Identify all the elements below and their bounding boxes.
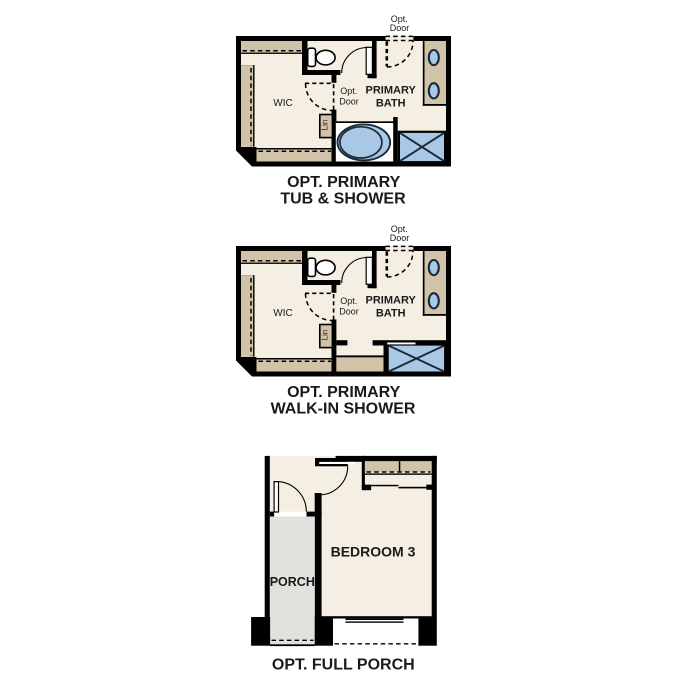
svg-text:Opt.: Opt.: [340, 296, 357, 306]
svg-text:Door: Door: [390, 233, 410, 243]
svg-text:WIC: WIC: [273, 308, 292, 319]
svg-text:Door: Door: [390, 23, 410, 33]
svg-text:Opt.: Opt.: [340, 86, 357, 96]
svg-text:PRIMARY: PRIMARY: [366, 84, 417, 96]
svg-text:OPT. PRIMARY: OPT. PRIMARY: [287, 174, 401, 191]
svg-text:OPT. PRIMARY: OPT. PRIMARY: [287, 384, 401, 401]
svg-text:OPT. FULL PORCH: OPT. FULL PORCH: [272, 656, 415, 673]
svg-text:BATH: BATH: [376, 307, 406, 319]
svg-text:WIC: WIC: [273, 98, 292, 109]
svg-text:PORCH: PORCH: [270, 575, 315, 589]
svg-text:Door: Door: [339, 96, 359, 106]
svg-text:BATH: BATH: [376, 97, 406, 109]
svg-text:Lin: Lin: [321, 120, 330, 131]
svg-text:TUB & SHOWER: TUB & SHOWER: [280, 190, 406, 207]
svg-text:WALK-IN SHOWER: WALK-IN SHOWER: [271, 400, 416, 417]
svg-text:PRIMARY: PRIMARY: [366, 294, 417, 306]
svg-text:BEDROOM 3: BEDROOM 3: [331, 544, 416, 560]
svg-text:Lin: Lin: [321, 330, 330, 341]
svg-text:Door: Door: [339, 306, 359, 316]
